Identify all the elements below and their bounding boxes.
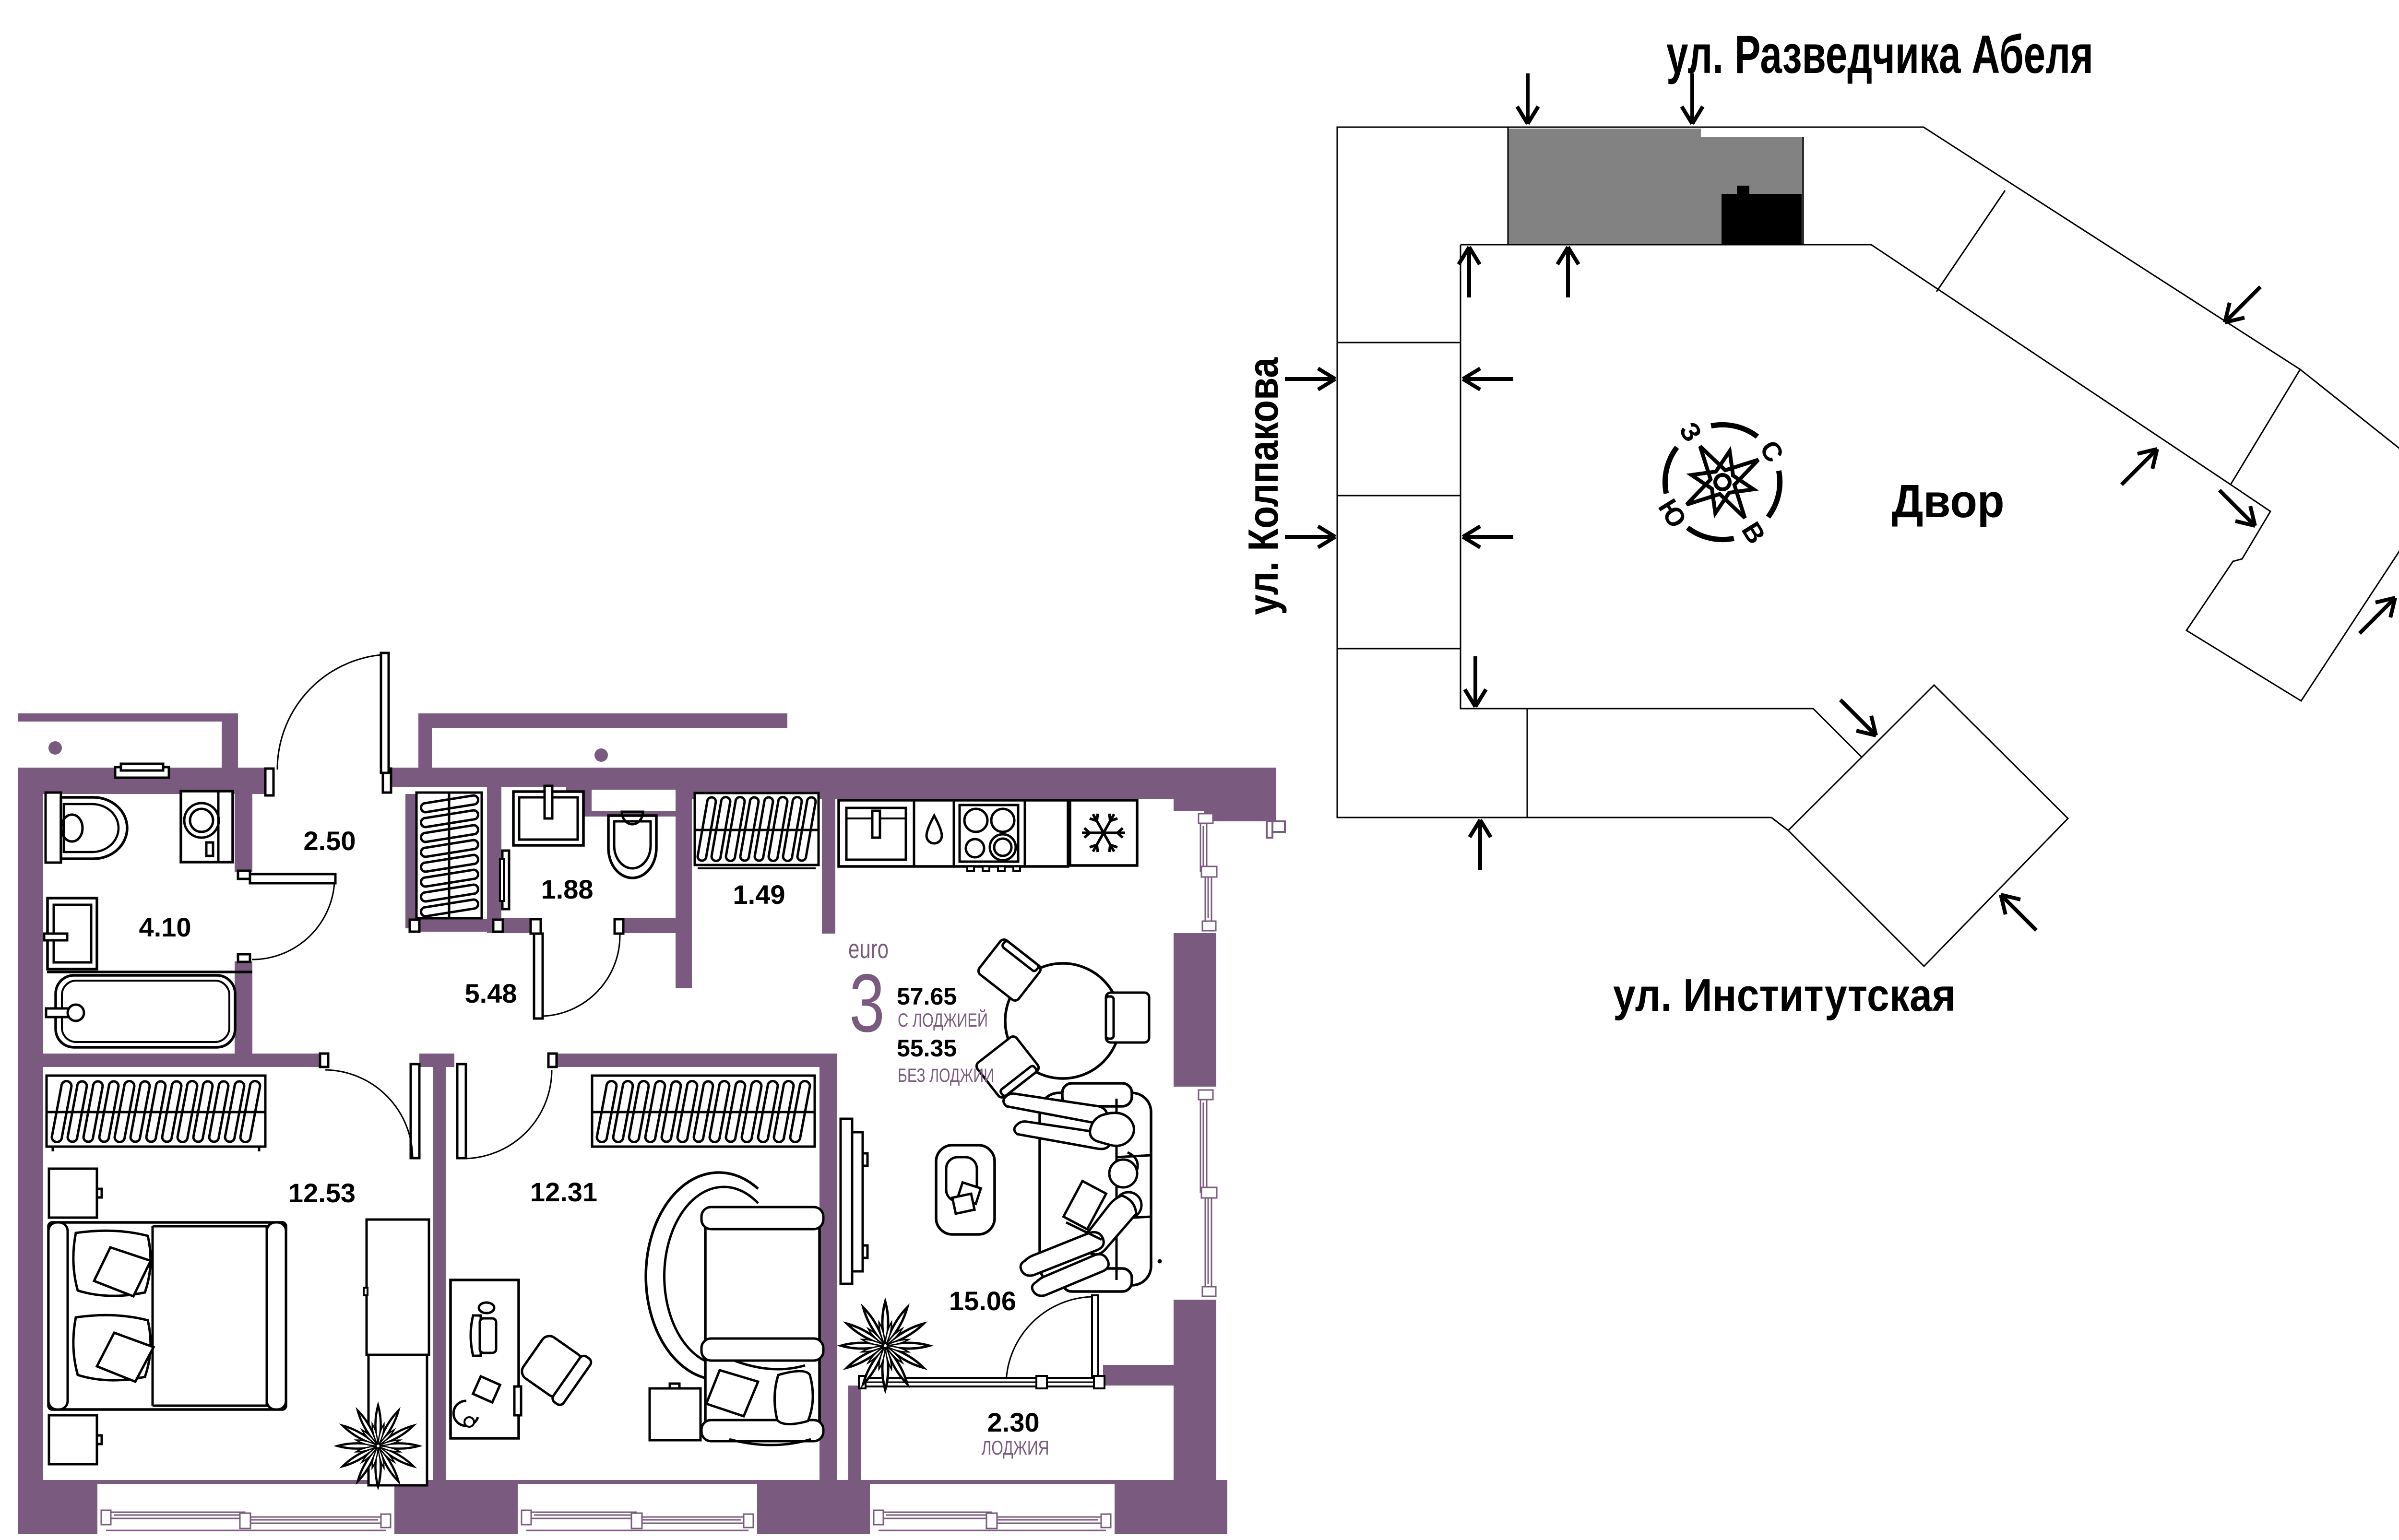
svg-text:2.50: 2.50: [304, 826, 356, 856]
svg-text:ЛОДЖИЯ: ЛОДЖИЯ: [982, 1436, 1049, 1459]
svg-text:2.30: 2.30: [987, 1407, 1040, 1437]
svg-text:С ЛОДЖИЕЙ: С ЛОДЖИЕЙ: [898, 1009, 988, 1031]
svg-text:55.35: 55.35: [897, 1035, 957, 1062]
svg-text:12.31: 12.31: [530, 1177, 597, 1207]
svg-text:ул. Институтская: ул. Институтская: [1613, 970, 1956, 1021]
svg-text:3: 3: [849, 957, 885, 1049]
svg-text:ул. Колпакова: ул. Колпакова: [1239, 357, 1287, 615]
svg-text:4.10: 4.10: [139, 912, 191, 942]
svg-text:Двор: Двор: [1892, 475, 2005, 527]
svg-text:1.49: 1.49: [733, 879, 785, 910]
svg-text:5.48: 5.48: [465, 978, 517, 1008]
svg-text:12.53: 12.53: [288, 1178, 356, 1208]
svg-text:15.06: 15.06: [949, 1286, 1016, 1316]
svg-text:1.88: 1.88: [541, 874, 594, 904]
svg-text:БЕЗ ЛОДЖИИ: БЕЗ ЛОДЖИИ: [898, 1065, 994, 1086]
svg-text:ул. Разведчика Абеля: ул. Разведчика Абеля: [1666, 24, 2093, 84]
svg-text:57.65: 57.65: [897, 983, 957, 1010]
